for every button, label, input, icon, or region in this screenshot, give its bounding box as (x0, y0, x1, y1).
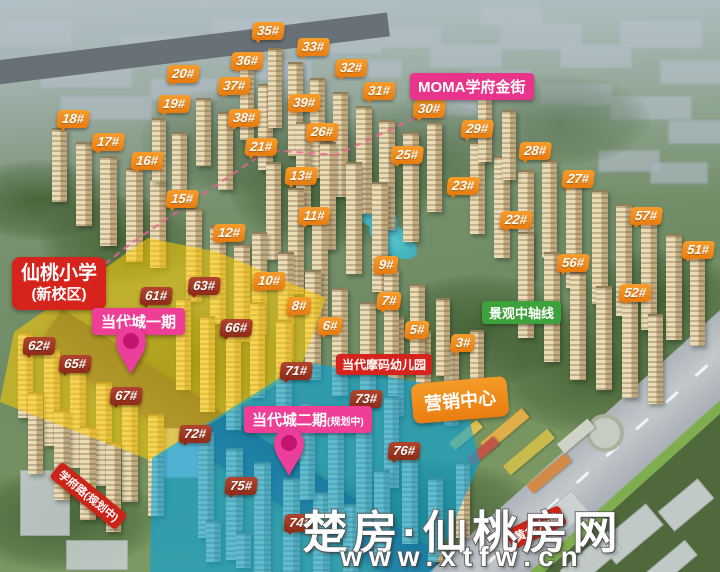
building-tag-26: 26# (305, 123, 339, 141)
building-tag-13: 13# (284, 167, 318, 185)
pin-icon (113, 323, 149, 375)
school-label-line2: (新校区) (21, 286, 97, 305)
building-tag-23: 23# (446, 177, 480, 195)
building-tag-72: 72# (178, 425, 212, 443)
building-tag-6: 6# (317, 317, 343, 335)
building-tag-9: 9# (373, 256, 399, 274)
building-tag-31: 31# (362, 82, 396, 100)
school-label-line1: 仙桃小学 (21, 262, 97, 286)
building-tag-7: 7# (376, 292, 402, 310)
building-tag-20: 20# (166, 65, 200, 83)
building-tag-12: 12# (212, 224, 246, 242)
building-tag-52: 52# (618, 284, 652, 302)
building-tag-61: 61# (139, 287, 173, 305)
pin-icon (271, 425, 307, 477)
building-tag-57: 57# (629, 207, 663, 225)
building-tag-3: 3# (450, 334, 476, 352)
building-tag-71: 71# (279, 362, 313, 380)
boundary-dashed-line (0, 0, 720, 572)
building-tag-37: 37# (217, 77, 251, 95)
building-tag-56: 56# (556, 254, 590, 272)
building-tag-11: 11# (298, 207, 331, 225)
building-tag-22: 22# (499, 211, 533, 229)
moma-street-label: MOMA学府金街 (410, 73, 534, 100)
building-tag-63: 63# (187, 277, 221, 295)
building-tag-62: 62# (22, 337, 56, 355)
building-tag-17: 17# (91, 133, 125, 151)
building-tag-67: 67# (109, 387, 143, 405)
building-tag-18: 18# (56, 110, 90, 128)
kindergarten-label: 当代摩码幼儿园 (336, 354, 432, 375)
building-tag-19: 19# (157, 95, 191, 113)
building-tag-76: 76# (387, 442, 421, 460)
building-tag-35: 35# (251, 22, 285, 40)
building-tag-66: 66# (219, 319, 253, 337)
building-tag-29: 29# (460, 120, 494, 138)
school-label: 仙桃小学 (新校区) (12, 257, 106, 310)
landscape-axis-label: 景观中轴线 (482, 301, 561, 324)
building-tag-30: 30# (412, 100, 446, 118)
watermark-url: www.xtfw.cn (205, 541, 720, 572)
building-tag-75: 75# (224, 477, 258, 495)
building-tag-51: 51# (681, 241, 715, 259)
phase2-label: 当代城二期(规划中) (244, 406, 372, 433)
phase2-pin (271, 425, 307, 482)
building-tag-21: 21# (244, 138, 278, 156)
aerial-masterplan-map: 35#33#32#31#30#29#28#27#36#37#38#39#20#1… (0, 0, 720, 572)
building-tag-5: 5# (404, 321, 430, 339)
building-tag-28: 28# (518, 142, 552, 160)
building-tag-27: 27# (561, 170, 595, 188)
building-tag-15: 15# (165, 190, 199, 208)
building-tag-38: 38# (227, 109, 261, 127)
phase2-label-note: (规划中) (327, 417, 364, 428)
building-tag-32: 32# (334, 59, 368, 77)
building-tag-65: 65# (58, 355, 92, 373)
building-tag-10: 10# (252, 272, 286, 290)
building-tag-16: 16# (130, 152, 164, 170)
sales-center-label: 营销中心 (410, 376, 509, 424)
building-tag-39: 39# (287, 94, 321, 112)
building-tag-25: 25# (390, 146, 424, 164)
building-tag-36: 36# (230, 52, 264, 70)
building-tag-8: 8# (286, 297, 312, 315)
phase1-pin (113, 323, 149, 380)
building-tag-33: 33# (296, 38, 330, 56)
